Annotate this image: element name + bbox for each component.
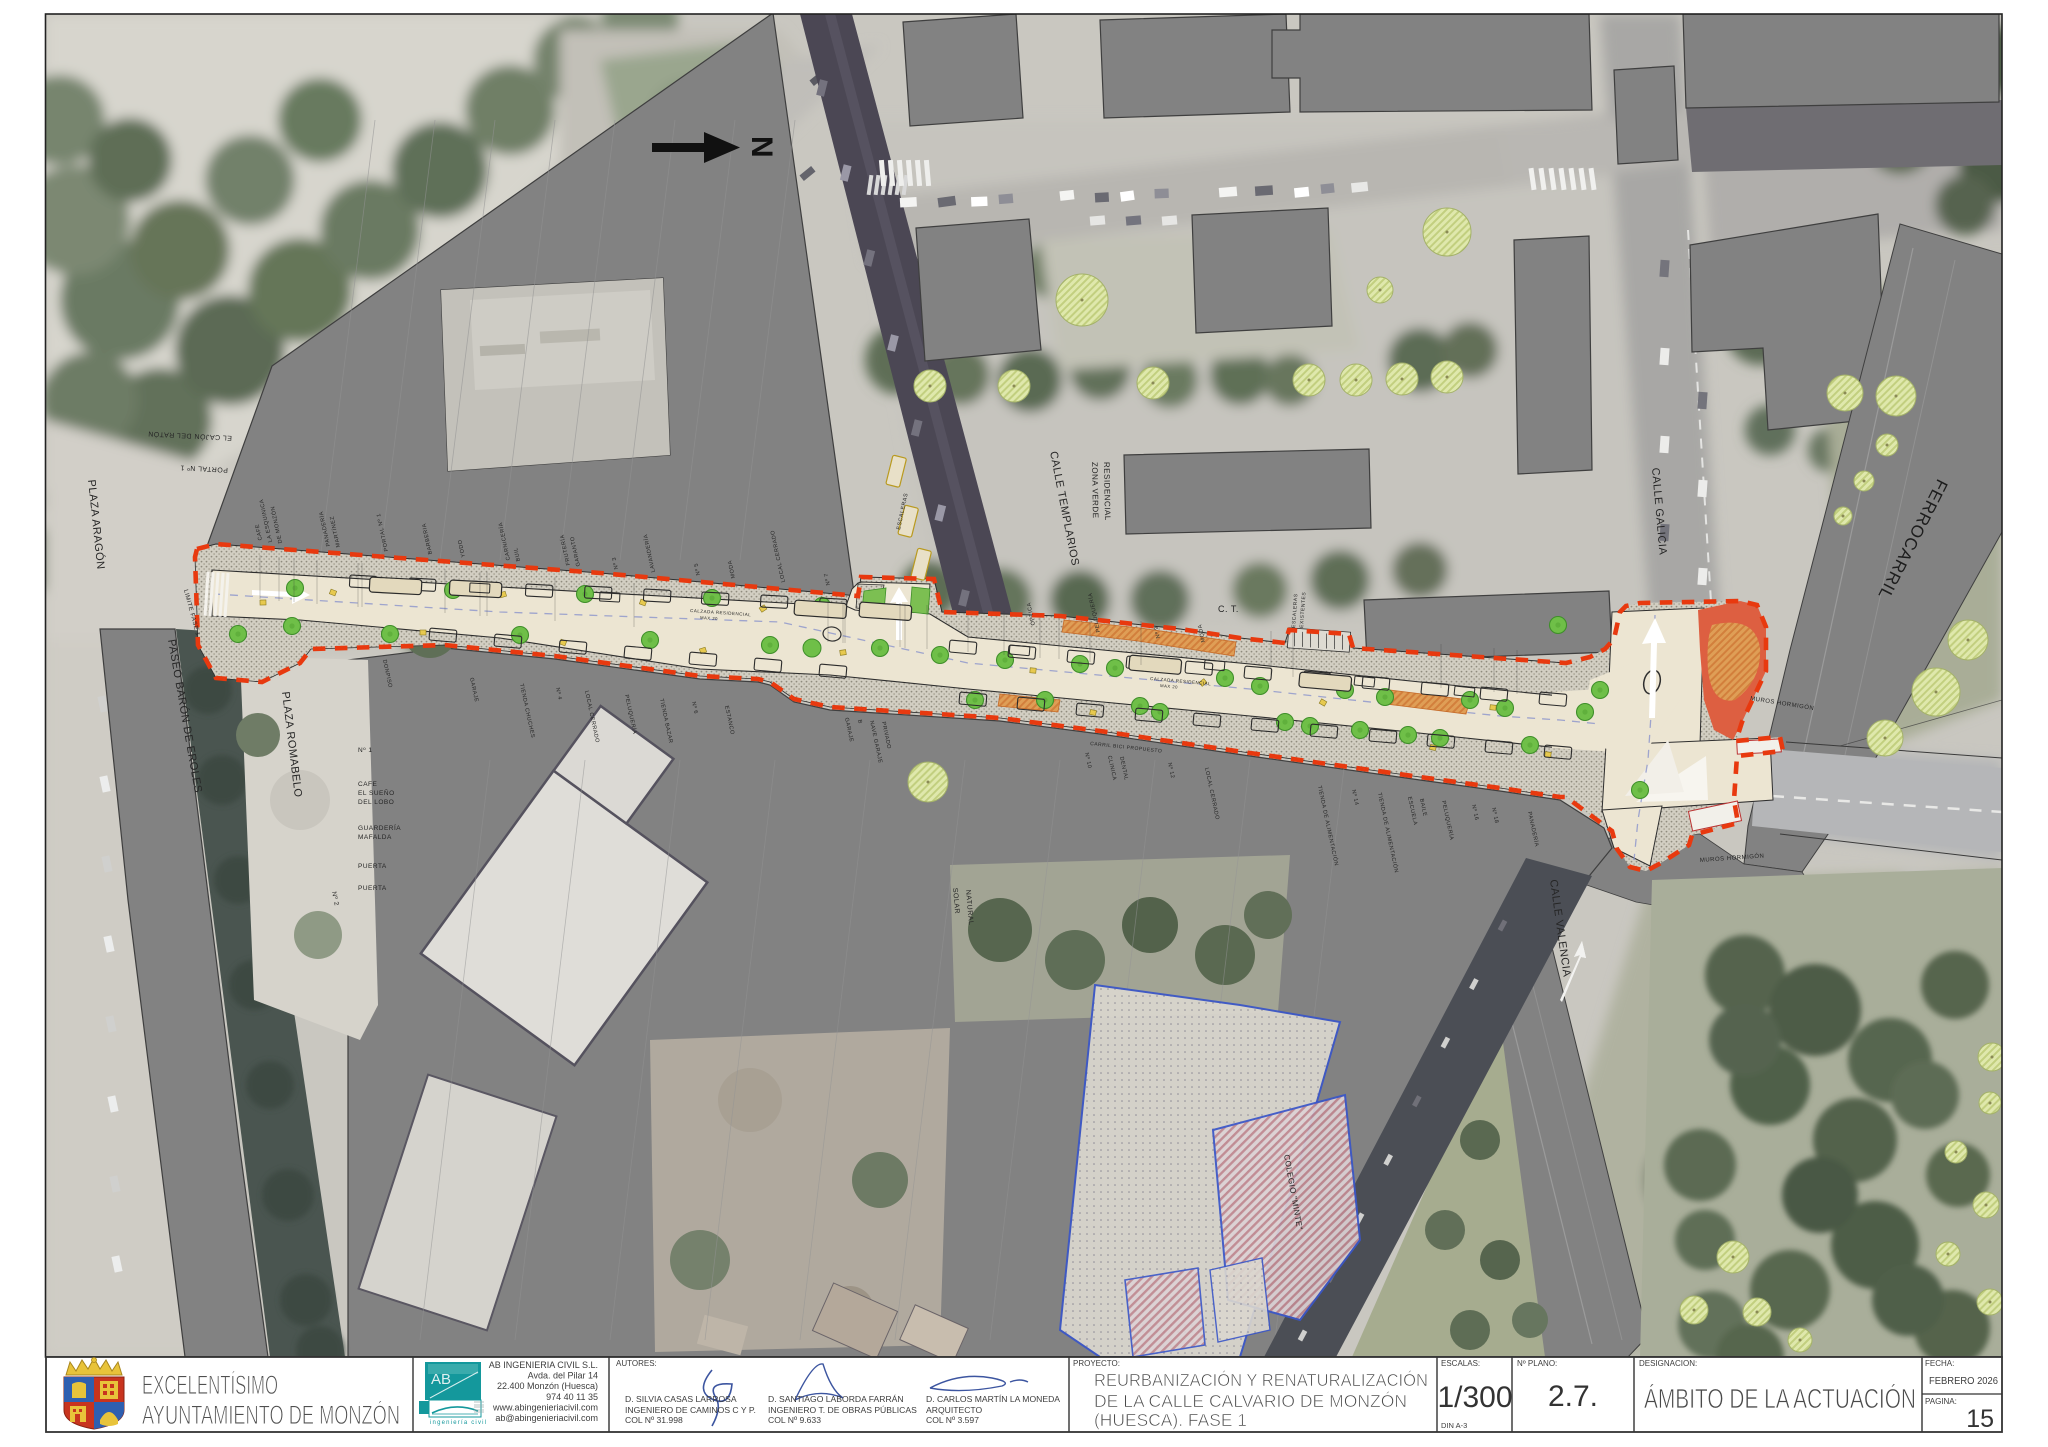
svg-text:REURBANIZACIÓN Y RENATURALIZAC: REURBANIZACIÓN Y RENATURALIZACIÓN: [1094, 1369, 1428, 1390]
svg-text:C. T.: C. T.: [1218, 604, 1239, 614]
svg-text:1/300: 1/300: [1437, 1381, 1512, 1414]
svg-text:RESIDENCIAL: RESIDENCIAL: [1102, 462, 1112, 521]
svg-text:DIN A-3: DIN A-3: [1441, 1421, 1467, 1430]
svg-text:FEBRERO 2026: FEBRERO 2026: [1929, 1376, 1998, 1387]
svg-text:PAGINA:: PAGINA:: [1925, 1397, 1957, 1406]
svg-text:D. SANTIAGO LABORDA FARRÁN: D. SANTIAGO LABORDA FARRÁN: [768, 1394, 904, 1404]
svg-text:Avda. del Pilar 14: Avda. del Pilar 14: [528, 1371, 598, 1381]
svg-text:AB INGENIERIA CIVIL S.L.: AB INGENIERIA CIVIL S.L.: [489, 1360, 598, 1370]
svg-text:N: N: [745, 136, 778, 158]
svg-text:AB: AB: [431, 1371, 451, 1388]
svg-text:AYUNTAMIENTO DE MONZÓN: AYUNTAMIENTO DE MONZÓN: [142, 1399, 400, 1430]
svg-text:EXCELENTÍSIMO: EXCELENTÍSIMO: [142, 1370, 278, 1400]
svg-text:PROYECTO:: PROYECTO:: [1073, 1359, 1120, 1368]
svg-text:AUTORES:: AUTORES:: [616, 1359, 657, 1368]
svg-text:EL SUEÑO: EL SUEÑO: [358, 788, 395, 797]
svg-text:INGENIERO T. DE OBRAS PÚBL: INGENIERO T. DE OBRAS PÚBLICAS: [768, 1405, 917, 1415]
svg-text:2.7.: 2.7.: [1548, 1380, 1598, 1413]
svg-text:COL Nº 3.597: COL Nº 3.597: [926, 1415, 979, 1425]
svg-text:974 40 11 35: 974 40 11 35: [546, 1392, 598, 1402]
svg-text:ESCALAS:: ESCALAS:: [1441, 1359, 1480, 1368]
svg-text:www.abingenieriacivil.com: www.abingenieriacivil.com: [492, 1402, 598, 1412]
svg-text:MAFALDA: MAFALDA: [358, 834, 392, 841]
svg-text:DE LA CALLE CALVARIO DE MONZÓN: DE LA CALLE CALVARIO DE MONZÓN: [1094, 1390, 1407, 1411]
svg-text:PUERTA: PUERTA: [358, 863, 387, 870]
svg-text:ingeniería civil: ingeniería civil: [430, 1420, 487, 1426]
svg-text:ab@abingenieriacivil.com: ab@abingenieriacivil.com: [495, 1413, 598, 1423]
svg-text:(HUESCA). FASE 1: (HUESCA). FASE 1: [1094, 1410, 1247, 1430]
svg-text:15: 15: [1966, 1405, 1994, 1433]
svg-text:FECHA:: FECHA:: [1925, 1359, 1954, 1368]
svg-text:PUERTA: PUERTA: [358, 885, 387, 892]
svg-text:D. SILVIA CASAS LARROSA: D. SILVIA CASAS LARROSA: [625, 1394, 737, 1404]
svg-text:Nº PLANO:: Nº PLANO:: [1517, 1359, 1557, 1368]
svg-text:COL Nº 31.998: COL Nº 31.998: [625, 1415, 683, 1425]
svg-text:GUARDERÍA: GUARDERÍA: [358, 823, 401, 832]
svg-text:DESIGNACION:: DESIGNACION:: [1639, 1359, 1697, 1368]
svg-text:ZONA VERDE: ZONA VERDE: [1090, 462, 1100, 519]
svg-text:DEL LOBO: DEL LOBO: [358, 799, 394, 806]
svg-text:D. CARLOS MARTÍN LA MONEDA: D. CARLOS MARTÍN LA MONEDA: [926, 1394, 1060, 1404]
svg-text:CAFE: CAFE: [358, 781, 378, 788]
svg-text:COL Nº 9.633: COL Nº 9.633: [768, 1415, 821, 1425]
svg-text:INGENIERO DE CAMINOS C Y: INGENIERO DE CAMINOS C Y P.: [625, 1405, 756, 1415]
svg-text:Nº 1: Nº 1: [358, 747, 373, 754]
svg-text:22.400 Monzón (Huesca): 22.400 Monzón (Huesca): [497, 1381, 598, 1391]
svg-text:ARQUITECTO: ARQUITECTO: [926, 1405, 982, 1415]
svg-text:ÁMBITO DE LA ACTUACIÓN: ÁMBITO DE LA ACTUACIÓN: [1644, 1383, 1916, 1414]
